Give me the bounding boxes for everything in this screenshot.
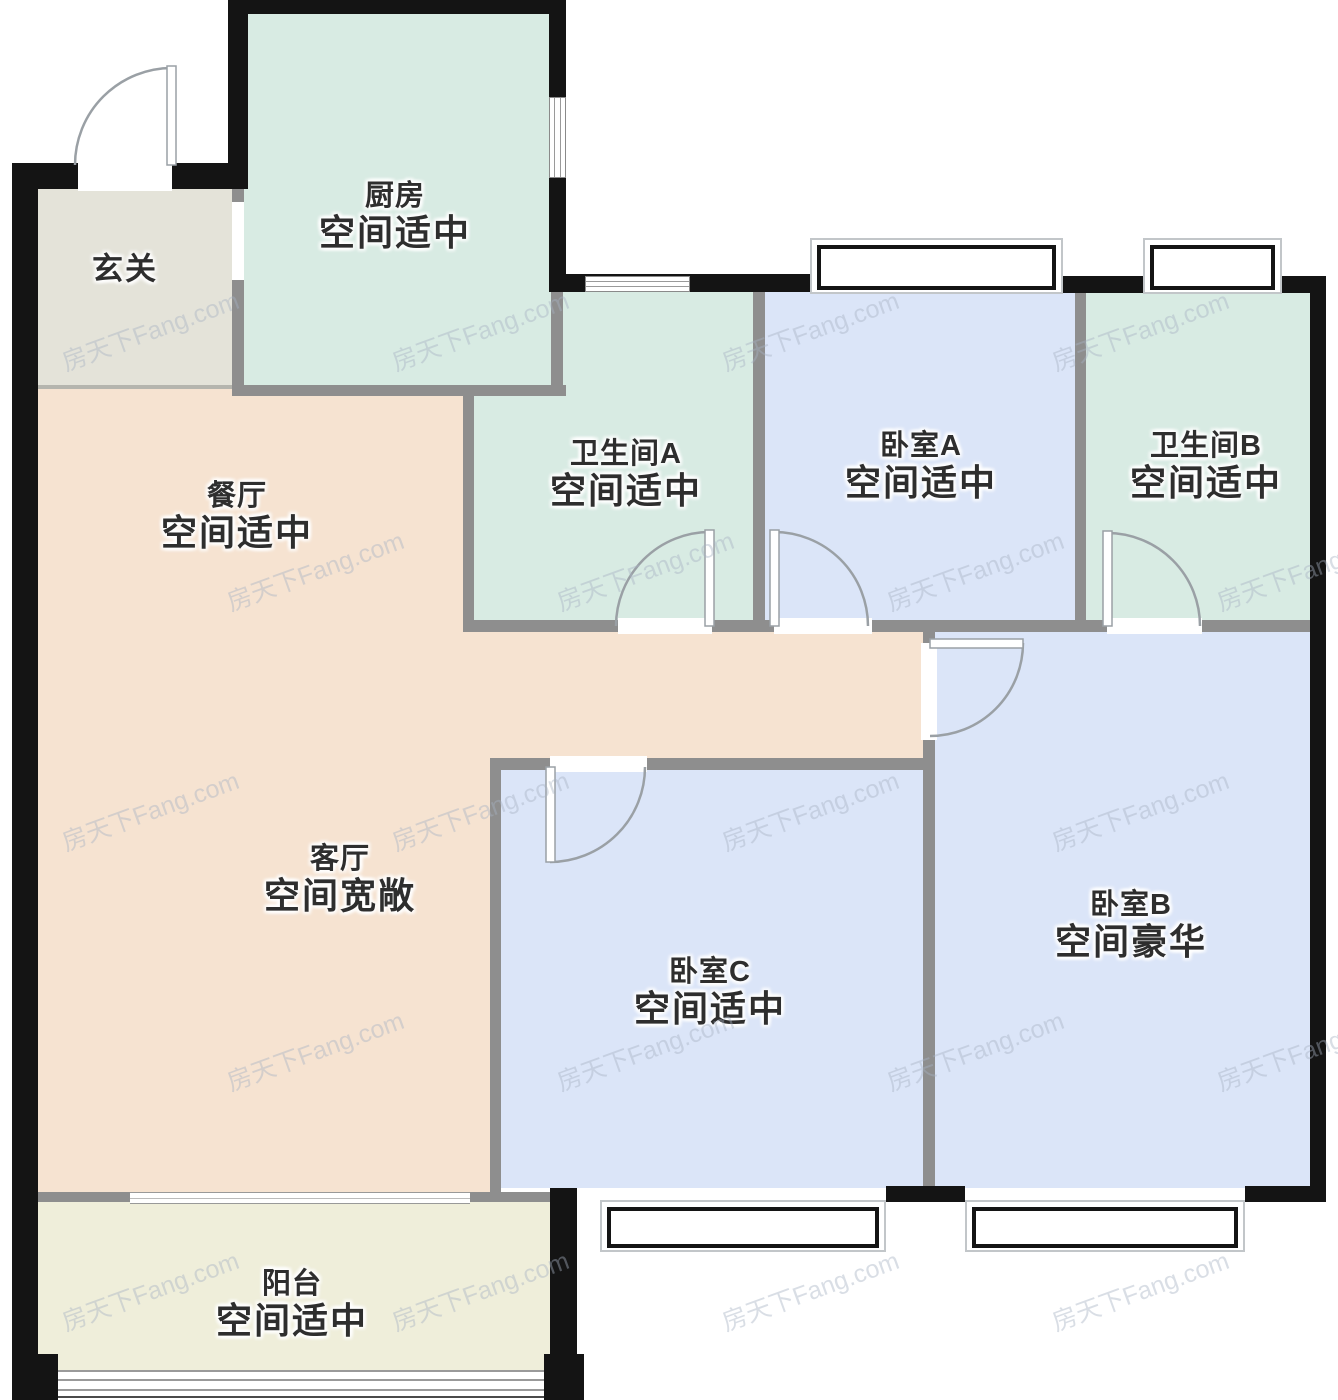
bathroom-b-desc: 空间适中 <box>1130 463 1282 503</box>
bedroom-a-desc: 空间适中 <box>845 463 997 503</box>
dining-desc: 空间适中 <box>161 513 313 553</box>
bedroom-c-desc: 空间适中 <box>634 989 786 1029</box>
dining-name: 餐厅 <box>207 481 267 511</box>
balcony-name: 阳台 <box>262 1269 322 1299</box>
bathroom-a-label: 卫生间A 空间适中 <box>550 439 702 511</box>
kitchen-label: 厨房 空间适中 <box>319 181 471 253</box>
bathroom-a-door <box>616 530 714 626</box>
living-label: 客厅 空间宽敞 <box>264 844 416 916</box>
balcony-desc: 空间适中 <box>216 1301 368 1341</box>
bedroom-a-door <box>770 530 868 626</box>
bathroom-b-door <box>1103 531 1200 626</box>
dining-label: 餐厅 空间适中 <box>161 481 313 553</box>
bedroom-c-door <box>546 767 645 862</box>
balcony-label: 阳台 空间适中 <box>216 1269 368 1341</box>
foyer-label: 玄关 <box>92 254 158 287</box>
bedroom-c-label: 卧室C 空间适中 <box>634 957 786 1029</box>
bedroom-b-door <box>930 639 1023 736</box>
bedroom-a-label: 卧室A 空间适中 <box>845 431 997 503</box>
bedroom-b-desc: 空间豪华 <box>1055 922 1207 962</box>
bedroom-b-label: 卧室B 空间豪华 <box>1055 890 1207 962</box>
door-symbols <box>0 0 1338 1400</box>
foyer-name: 玄关 <box>92 254 158 287</box>
bathroom-b-name: 卫生间B <box>1150 431 1262 461</box>
living-desc: 空间宽敞 <box>264 876 416 916</box>
entrance-door <box>75 66 176 165</box>
bedroom-c-name: 卧室C <box>669 957 751 987</box>
bedroom-a-name: 卧室A <box>880 431 962 461</box>
bathroom-a-desc: 空间适中 <box>550 471 702 511</box>
bathroom-a-name: 卫生间A <box>570 439 682 469</box>
floor-plan: 玄关 厨房 空间适中 餐厅 空间适中 卫生间A 空间适中 卧室A 空间适中 卫生… <box>0 0 1338 1400</box>
bathroom-b-label: 卫生间B 空间适中 <box>1130 431 1282 503</box>
kitchen-desc: 空间适中 <box>319 213 471 253</box>
kitchen-name: 厨房 <box>365 181 425 211</box>
living-name: 客厅 <box>310 844 370 874</box>
bedroom-b-name: 卧室B <box>1090 890 1172 920</box>
